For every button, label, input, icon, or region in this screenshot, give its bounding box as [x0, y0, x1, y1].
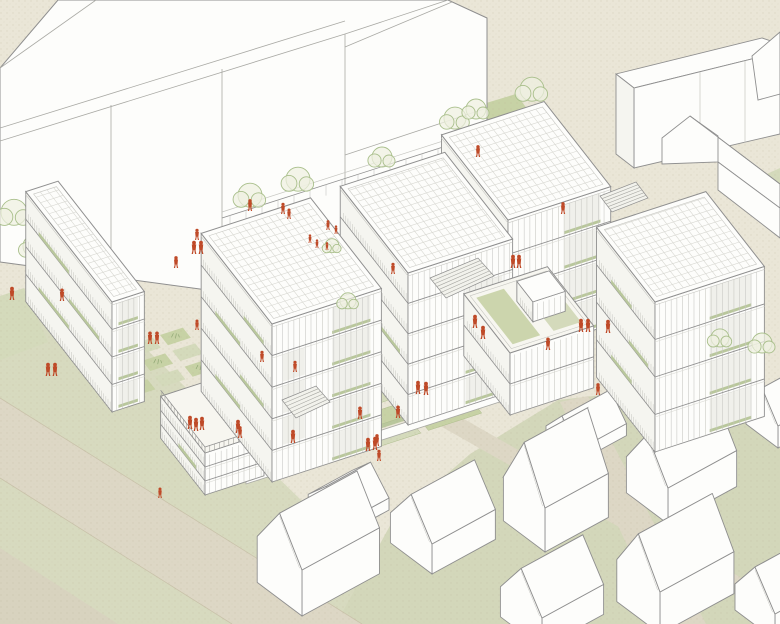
site-plan-illustration: [0, 0, 780, 624]
axonometric-site-plan-canvas: [0, 0, 780, 624]
